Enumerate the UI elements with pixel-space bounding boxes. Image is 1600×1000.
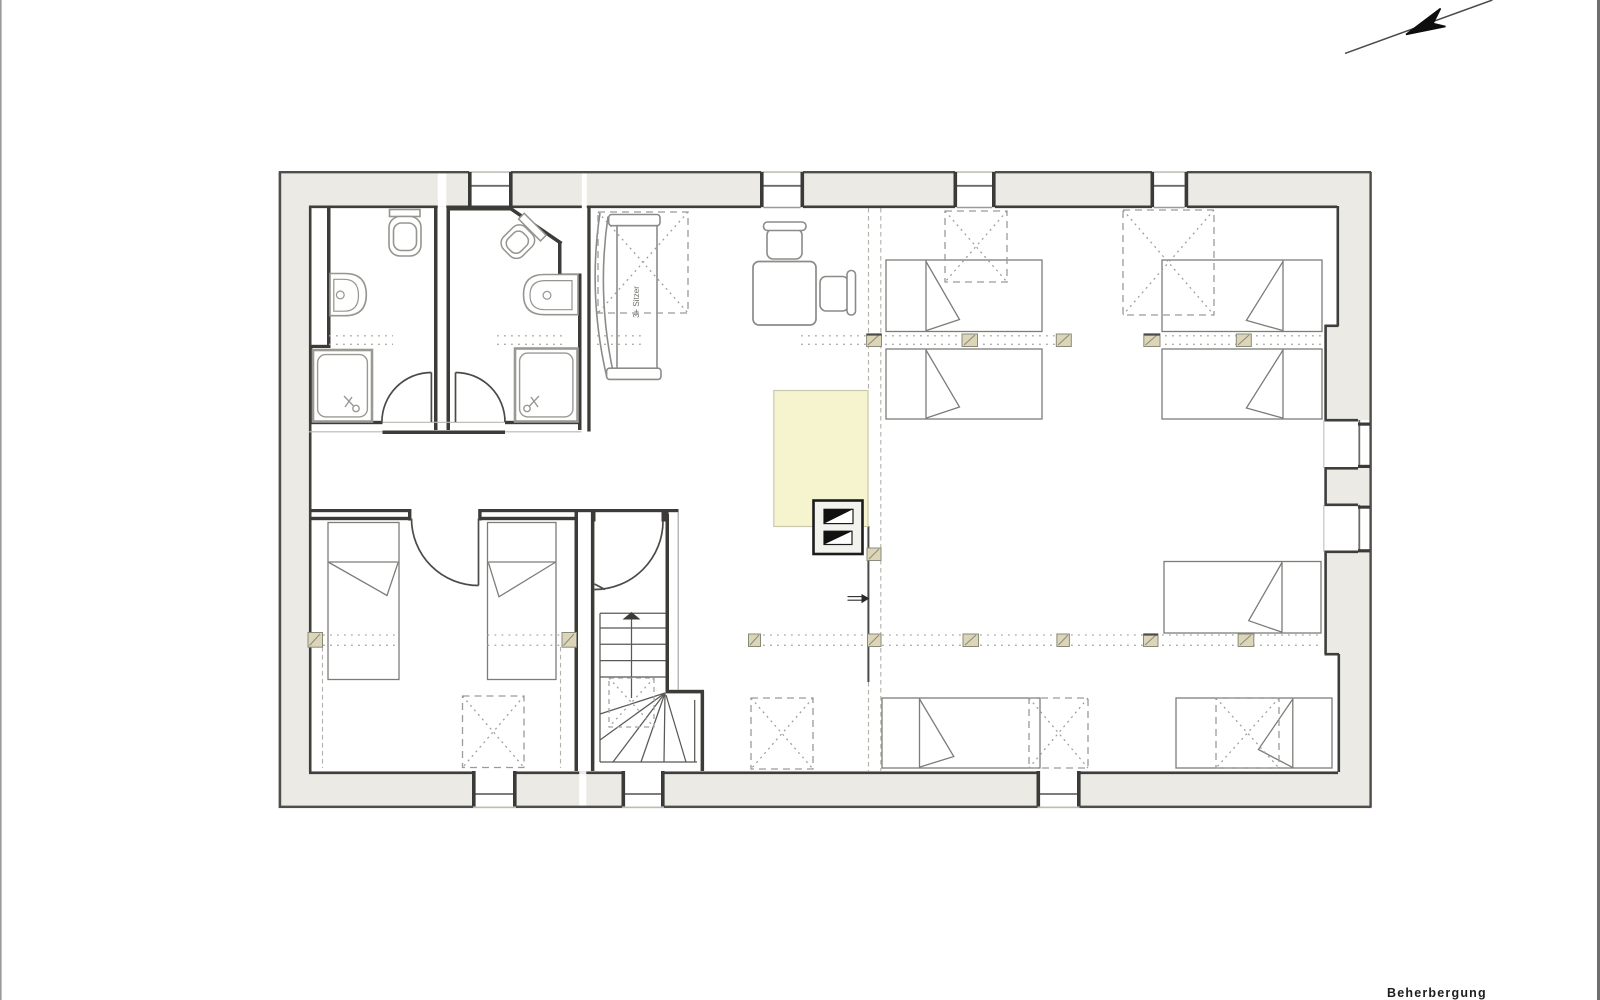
svg-text:Beherbergung: Beherbergung [1387,986,1487,1000]
